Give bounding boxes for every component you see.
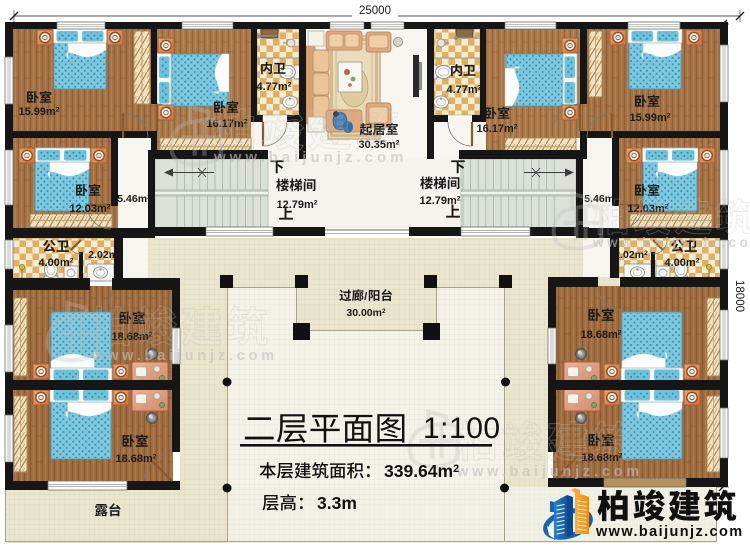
svg-text:15.99m2: 15.99m2 [629, 112, 670, 124]
svg-text:/: / [364, 291, 367, 303]
svg-text:12.79m2: 12.79m2 [276, 199, 317, 211]
svg-text:www.baijunjz.com: www.baijunjz.com [456, 464, 643, 480]
svg-text:www.baijunjz.com: www.baijunjz.com [213, 149, 407, 166]
svg-text:www.baijunjz.com: www.baijunjz.com [592, 235, 750, 250]
svg-text:18.68m2: 18.68m2 [115, 453, 156, 465]
svg-text:339.64m2: 339.64m2 [384, 461, 459, 481]
svg-text:3.3m: 3.3m [317, 493, 357, 513]
svg-text:2.02m2: 2.02m2 [88, 249, 122, 261]
svg-text:25000: 25000 [359, 5, 391, 17]
svg-text:12.79m2: 12.79m2 [419, 195, 460, 207]
svg-text:12.03m2: 12.03m2 [69, 203, 110, 215]
svg-text:16.17m2: 16.17m2 [476, 123, 517, 135]
svg-text:4.77m2: 4.77m2 [257, 81, 292, 93]
svg-text:15.99m2: 15.99m2 [18, 106, 59, 118]
svg-text:4.77m2: 4.77m2 [447, 84, 482, 96]
svg-text:www.baijunjz.com: www.baijunjz.com [595, 524, 744, 540]
svg-text:30.00m2: 30.00m2 [346, 307, 386, 319]
svg-text:www.baijunjz.com: www.baijunjz.com [91, 348, 278, 364]
svg-text:2.02m2: 2.02m2 [614, 249, 648, 261]
svg-text:18000: 18000 [733, 280, 745, 312]
svg-text:1:100: 1:100 [423, 412, 501, 445]
svg-text:4.00m2: 4.00m2 [39, 257, 74, 269]
svg-text:5.46m2: 5.46m2 [117, 193, 151, 205]
svg-text:18.68m2: 18.68m2 [580, 329, 621, 341]
svg-text:4.00m2: 4.00m2 [665, 257, 700, 269]
svg-text:18.68m2: 18.68m2 [111, 331, 152, 343]
